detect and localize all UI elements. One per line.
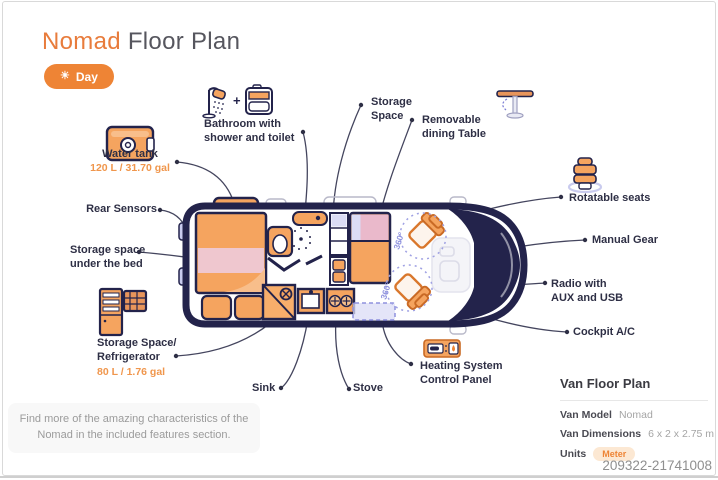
info-panel-title: Van Floor Plan — [560, 376, 708, 401]
heating-panel-icon — [424, 340, 460, 357]
bathroom-label: Bathroom with shower and toilet — [204, 117, 294, 146]
van-floor-plan: 360° 360° — [179, 197, 524, 334]
radio-label: Radio with AUX and USB — [551, 277, 623, 306]
van-info-panel: Van Floor Plan Van Model Nomad Van Dimen… — [560, 376, 708, 461]
van-model-row: Van Model Nomad — [560, 409, 708, 421]
fridge-label: Storage Space/ Refrigerator 80 L / 1.76 … — [97, 336, 176, 379]
bathroom-sink — [293, 212, 327, 225]
page-title-accent: Nomad — [42, 28, 121, 55]
storage-space-label: Storage Space — [371, 95, 412, 124]
fridge-capacity: 80 L / 1.76 gal — [97, 366, 176, 380]
features-note-text: Find more of the amazing characteristics… — [17, 412, 252, 444]
day-mode-toggle[interactable]: ☀ Day — [44, 64, 114, 89]
cockpit-ac-label: Cockpit A/C — [573, 325, 635, 339]
under-bed-storage-label: Storage space under the bed — [70, 243, 145, 272]
dashboard — [432, 238, 470, 292]
floor-plan-page: 360° 360° — [0, 0, 718, 480]
sink-label: Sink — [252, 381, 275, 395]
wardrobe-storage — [330, 213, 348, 285]
page-title-rest: Floor Plan — [121, 28, 240, 55]
bottom-border — [0, 476, 718, 478]
water-tank-label: Water tank 120 L / 31.70 gal — [80, 147, 180, 176]
toilet-icon — [246, 85, 272, 114]
refrigerator-icon — [100, 289, 146, 335]
water-tank-capacity: 120 L / 31.70 gal — [80, 162, 180, 176]
rear-sensors-label: Rear Sensors — [62, 202, 157, 216]
day-mode-label: Day — [76, 70, 98, 84]
rotatable-seat-icon — [569, 158, 601, 192]
features-note: Find more of the amazing characteristics… — [8, 403, 260, 453]
bed — [196, 213, 266, 293]
heating-label: Heating System Control Panel — [420, 359, 503, 388]
rotatable-seats-label: Rotatable seats — [569, 191, 650, 205]
van-dimensions-row: Van Dimensions 6 x 2 x 2.75 m — [560, 428, 708, 440]
shower-icon — [203, 88, 226, 118]
dining-table-label: Removable dining Table — [422, 113, 486, 142]
sun-icon: ☀ — [60, 71, 70, 82]
bench-seat — [350, 213, 390, 283]
kitchen — [263, 285, 354, 319]
page-title: Nomad Floor Plan — [42, 28, 240, 56]
dining-table-icon — [497, 91, 533, 118]
image-id: 209322-21741008 — [602, 458, 712, 473]
heating-zone — [353, 303, 395, 320]
manual-gear-label: Manual Gear — [592, 233, 658, 247]
stove-label: Stove — [353, 381, 383, 395]
plus-sign: + — [233, 93, 241, 108]
